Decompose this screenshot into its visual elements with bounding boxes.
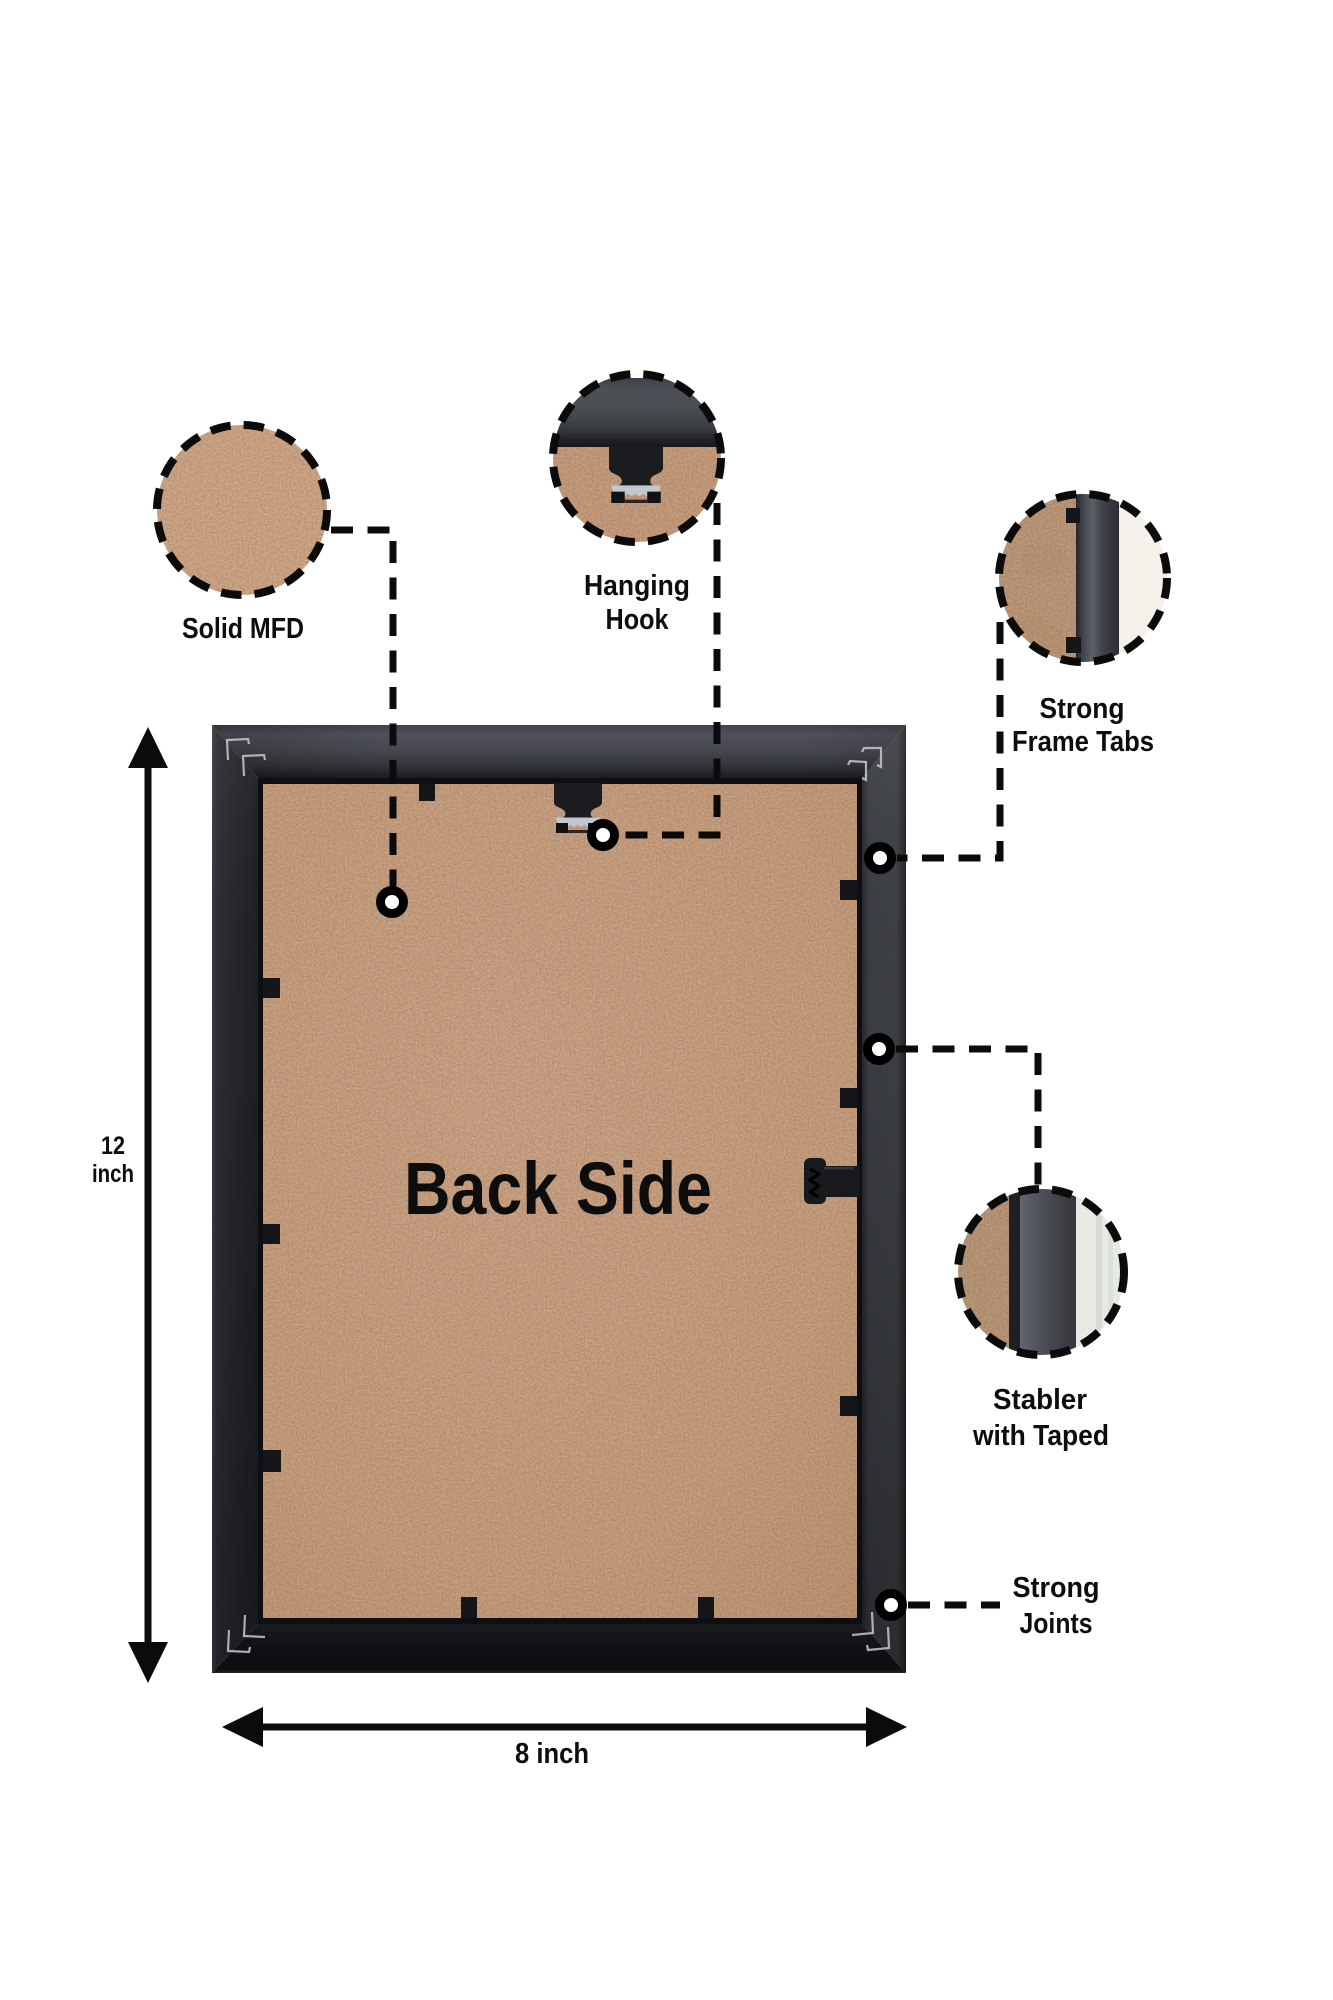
svg-text:inch: inch xyxy=(92,1160,134,1188)
svg-text:8 inch: 8 inch xyxy=(515,1738,589,1770)
svg-text:Stabler: Stabler xyxy=(993,1384,1087,1416)
svg-text:with Taped: with Taped xyxy=(972,1420,1109,1452)
svg-text:Back Side: Back Side xyxy=(404,1147,712,1230)
svg-text:12: 12 xyxy=(101,1132,125,1160)
svg-text:Frame Tabs: Frame Tabs xyxy=(1012,726,1154,758)
svg-text:Hanging: Hanging xyxy=(584,570,690,602)
svg-text:Joints: Joints xyxy=(1020,1608,1093,1640)
svg-text:Hook: Hook xyxy=(606,604,670,636)
svg-text:Strong: Strong xyxy=(1013,1572,1100,1604)
svg-text:Solid MFD: Solid MFD xyxy=(182,613,304,645)
svg-text:Strong: Strong xyxy=(1040,693,1125,725)
